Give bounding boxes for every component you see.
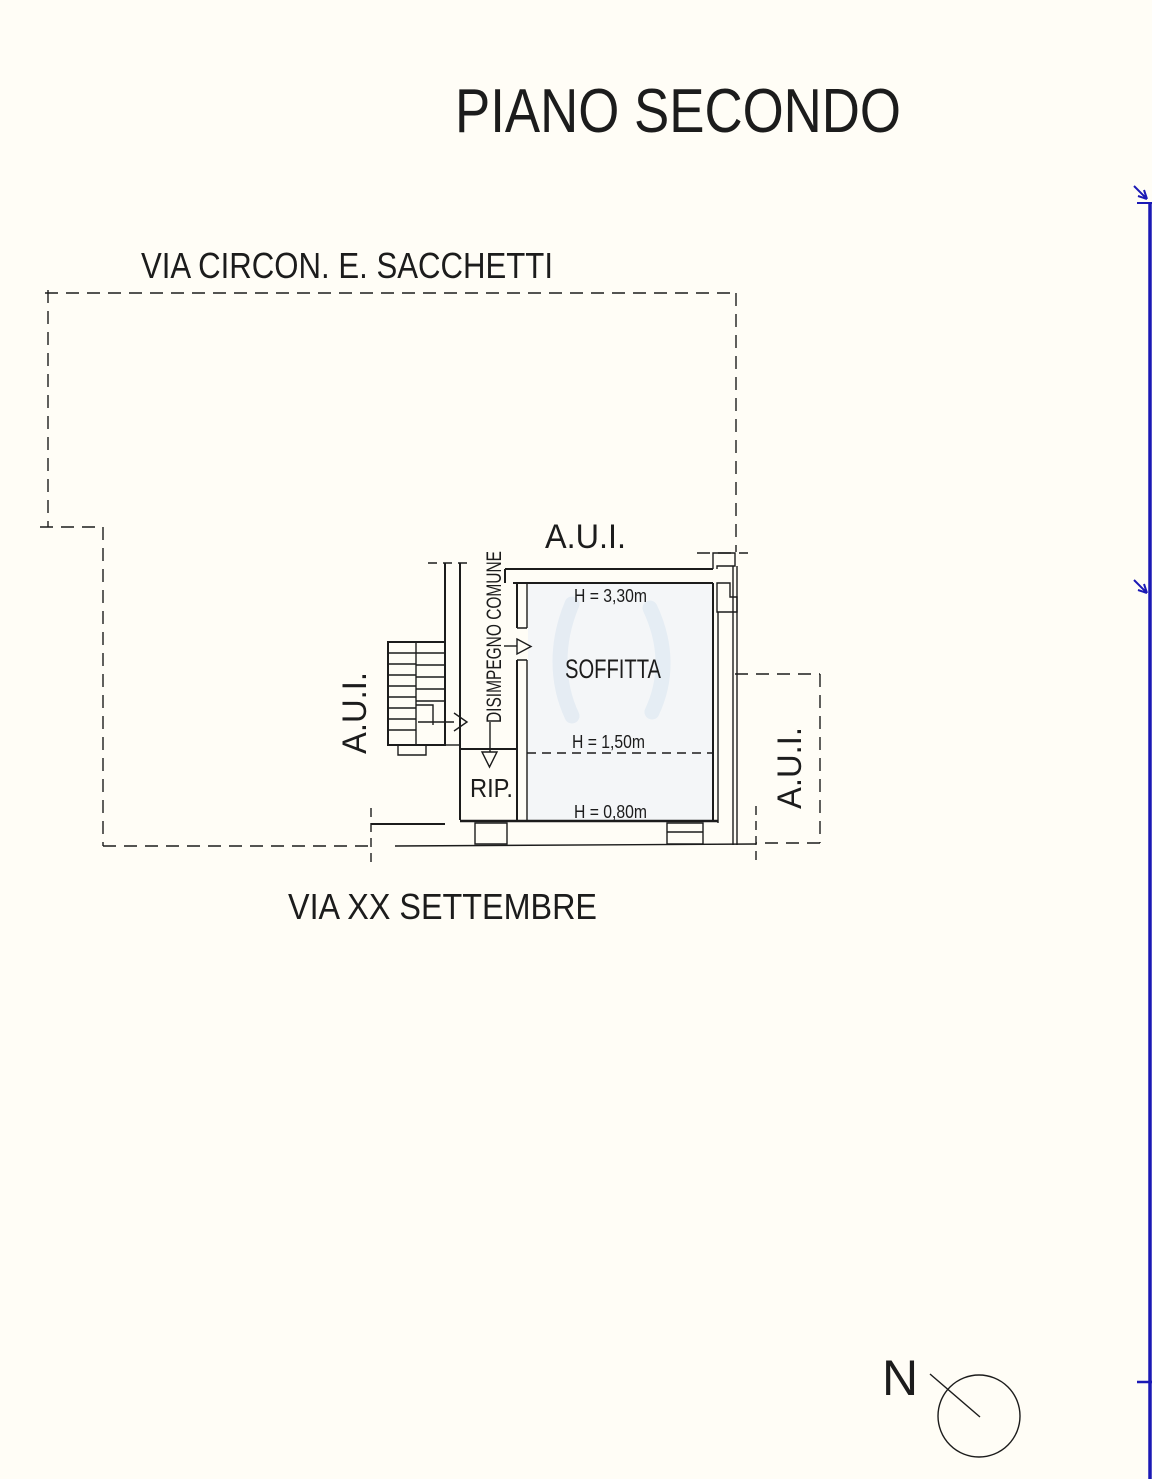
bottom-pillar-right: [667, 823, 703, 844]
top-wall-right-step: [713, 553, 735, 569]
staircase: [388, 642, 467, 755]
stair-treads-right: [416, 653, 445, 701]
height-label-low: H = 0,80m: [574, 802, 647, 822]
height-label-top: H = 3,30m: [574, 586, 647, 606]
top-right-pillar: [717, 583, 737, 612]
edge-arrow-top: [1134, 186, 1152, 203]
boundary-left-step: [40, 527, 103, 846]
north-compass: N: [882, 1350, 1020, 1457]
stair-treads-left: [388, 653, 416, 730]
page-edge-marks: [1134, 186, 1152, 1479]
edge-arrow-mid: [1134, 580, 1147, 593]
stair-bottom-tab: [398, 745, 426, 755]
storage-label: RIP.: [470, 773, 513, 803]
soffitta-room-fill: [528, 584, 714, 820]
unit-label-right: A.U.I.: [771, 727, 809, 809]
street-label-top: VIA CIRCON. E. SACCHETTI: [141, 245, 553, 286]
height-label-mid: H = 1,50m: [572, 732, 645, 752]
attic-label: SOFFITTA: [565, 654, 661, 684]
corridor-label: DISIMPEGNO COMUNE: [483, 551, 506, 723]
street-label-bottom: VIA XX SETTEMBRE: [288, 886, 597, 927]
page-title: PIANO SECONDO: [455, 77, 901, 146]
unit-label-left: A.U.I.: [336, 672, 374, 754]
corridor-down-arrow-head: [482, 752, 497, 767]
unit-label-top: A.U.I.: [545, 518, 626, 556]
compass-needle: [930, 1374, 980, 1417]
north-label: N: [882, 1350, 918, 1406]
ground-lines: [371, 824, 756, 846]
right-wall-outer-pair: [733, 566, 737, 845]
bottom-pillar-left: [475, 823, 507, 844]
floor-plan-page: PIANO SECONDO VIA CIRCON. E. SACCHETTI V…: [0, 0, 1152, 1479]
